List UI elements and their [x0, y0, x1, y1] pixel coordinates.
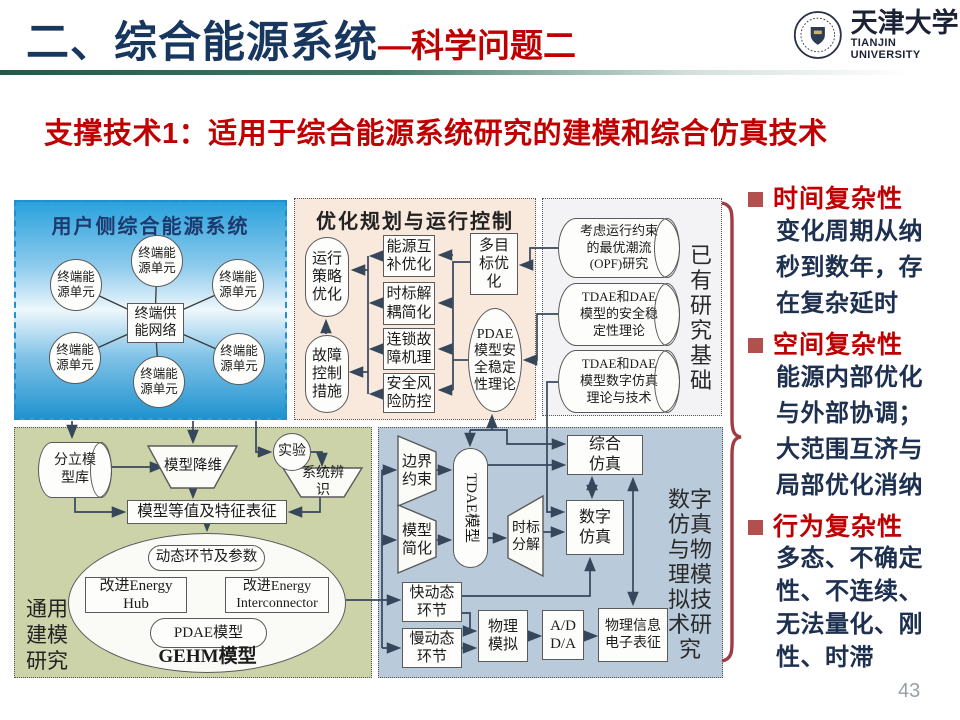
section-line: 能源内部优化 — [776, 360, 960, 396]
cylinder-tdae-security: TDAE和DAE 模型的安全稳 定性理论 — [558, 283, 680, 346]
label-general-modeling-research: 通用建模研究 — [24, 596, 70, 674]
slide: 二、综合能源系统—科学问题二 天津大学 TIANJIN UNIVERSITY 支… — [0, 0, 960, 720]
slide-subtitle: 支撑技术1：适用于综合能源系统研究的建模和综合仿真技术 — [44, 110, 828, 152]
section-line: 大范围互济与 — [776, 432, 960, 468]
section-line: 变化周期从纳 — [776, 214, 960, 250]
node-label: 数字仿真 — [577, 508, 613, 547]
title-main: 二、综合能源系统 — [26, 19, 378, 67]
node-tdae-model: TDAE模型 — [453, 448, 488, 568]
node-integrated-simulation: 综合仿真 — [567, 435, 643, 475]
section-line: 性、时滞 — [776, 641, 960, 674]
label-digital-physical-research: 数字仿真与物理模拟技术研究 — [666, 487, 714, 662]
node-operation-strategy: 运行策略优化 — [305, 237, 349, 317]
section-line: 在复杂延时 — [776, 286, 960, 322]
cyl-line: 的最优潮流 — [586, 240, 651, 257]
node-terminal-unit: 终端能源单元 — [131, 235, 183, 287]
node-label: A/D D/A — [549, 617, 577, 654]
node-dynamic-links: 动态环节及参数 — [148, 545, 265, 571]
node-slow-dynamics: 慢动态环节 — [402, 628, 462, 668]
cylinder-tdae-simulation: TDAE和DAE 模型数字仿真 理论与技术 — [558, 350, 680, 413]
cylinder-opf-research: 考虑运行约束 的最优潮流 (OPF)研究 — [558, 218, 680, 278]
sidebar-section-time-complexity: 时间复杂性 变化周期从纳 秒到数年，存 在复杂延时 — [748, 184, 960, 322]
logo-text-cn: 天津大学 — [851, 10, 960, 37]
node-terminal-unit: 终端能源单元 — [133, 356, 185, 408]
node-terminal-network: 终端供能网络 — [127, 303, 184, 343]
cyl-line: 模型的安全稳 — [580, 306, 658, 323]
section-heading: 时间复杂性 — [773, 184, 903, 214]
node-label: 综合仿真 — [587, 435, 623, 474]
node-label: 物理信息电子表征 — [604, 618, 662, 652]
cylinder-cap — [654, 283, 680, 346]
node-cyber-physical-representation: 物理信息电子表征 — [598, 608, 668, 662]
label-existing-research-base: 已有研究基础 — [688, 243, 714, 393]
sidebar-section-behavior-complexity: 行为复杂性 多态、不确定 性、不连续、 无法量化、刚 性、时滞 — [748, 512, 960, 674]
node-improved-energy-interconnector: 改进Energy Interconnector — [225, 577, 329, 613]
node-multi-objective: 多目标优化 — [470, 233, 518, 295]
node-terminal-unit: 终端能源单元 — [50, 259, 102, 311]
university-logo: 天津大学 TIANJIN UNIVERSITY — [793, 8, 960, 62]
cylinder-discrete-model-library: 分立模型库 — [38, 442, 112, 498]
panel-opt-title: 优化规划与运行控制 — [295, 205, 535, 234]
bullet-square-icon — [748, 192, 763, 207]
page-title: 二、综合能源系统—科学问题二 — [26, 8, 576, 70]
node-terminal-unit: 终端能源单元 — [49, 332, 101, 384]
title-suffix: —科学问题二 — [378, 27, 576, 64]
page-number: 43 — [898, 680, 920, 703]
red-brace — [722, 203, 741, 661]
node-fault-control: 故障控制措施 — [305, 335, 349, 413]
header-divider — [0, 70, 960, 75]
label-timescale-decomposition: 时标分解 — [509, 516, 543, 558]
cyl-line: (OPF)研究 — [590, 256, 649, 273]
node-terminal-unit: 终端能源单元 — [212, 259, 264, 311]
cylinder-cap — [654, 218, 680, 278]
tdae-rotated-label: TDAE模型 — [461, 473, 479, 543]
cyl-line: TDAE和DAE — [582, 289, 656, 306]
section-heading: 行为复杂性 — [773, 512, 903, 542]
cyl-line: 定性理论 — [593, 323, 645, 340]
node-pdae-security-theory: PDAE模型安全稳定性理论 — [468, 308, 522, 412]
cyl-line: 考虑运行约束 — [580, 223, 658, 240]
section-line: 与外部协调； — [776, 396, 960, 432]
section-line: 无法量化、刚 — [776, 608, 960, 641]
label-model-simplification: 模型简化 — [399, 514, 435, 566]
label-boundary-constraints: 边界约束 — [399, 445, 435, 497]
cyl-line: TDAE和DAE — [582, 356, 656, 373]
node-label: 物理模拟 — [487, 618, 519, 655]
section-line: 秒到数年，存 — [776, 250, 960, 286]
label-gehm-model: GEHM模型 — [150, 645, 265, 669]
node-ad-da: A/D D/A — [542, 610, 584, 660]
node-improved-energy-hub: 改进Energy Hub — [85, 577, 187, 613]
node-physical-simulation: 物理模拟 — [478, 610, 528, 662]
section-line: 多态、不确定 — [776, 542, 960, 575]
node-energy-complement: 能源互补优化 — [383, 235, 435, 277]
label-system-identification: 系统辨识 — [297, 467, 349, 497]
node-label: 快动态环节 — [408, 584, 456, 621]
sidebar-section-space-complexity: 空间复杂性 能源内部优化 与外部协调； 大范围互济与 局部优化消纳 — [748, 330, 960, 504]
label-model-reduction: 模型降维 — [160, 449, 226, 485]
node-timescale-decoupling: 时标解耦简化 — [383, 282, 435, 325]
university-seal-icon — [793, 8, 843, 62]
node-fast-dynamics: 快动态环节 — [402, 582, 462, 622]
cyl-line: 理论与技术 — [586, 390, 651, 407]
cylinder-cap — [90, 442, 112, 498]
node-model-equivalence: 模型等值及特征表征 — [127, 500, 287, 524]
cyl-line: 模型数字仿真 — [580, 373, 658, 390]
logo-text-en: TIANJIN UNIVERSITY — [851, 37, 960, 61]
bullet-square-icon — [748, 338, 763, 353]
node-terminal-unit: 终端能源单元 — [213, 333, 265, 385]
bullet-square-icon — [748, 520, 763, 535]
section-line: 局部优化消纳 — [776, 468, 960, 504]
node-pdae-model: PDAE模型 — [150, 618, 267, 648]
section-line: 性、不连续、 — [776, 575, 960, 608]
node-label: 慢动态环节 — [408, 630, 456, 667]
cylinder-cap — [654, 350, 680, 413]
section-heading: 空间复杂性 — [773, 330, 903, 360]
node-digital-simulation: 数字仿真 — [566, 500, 624, 555]
node-cascading-fault: 连锁故障机理 — [383, 328, 435, 370]
node-security-risk: 安全风险防控 — [383, 373, 435, 413]
